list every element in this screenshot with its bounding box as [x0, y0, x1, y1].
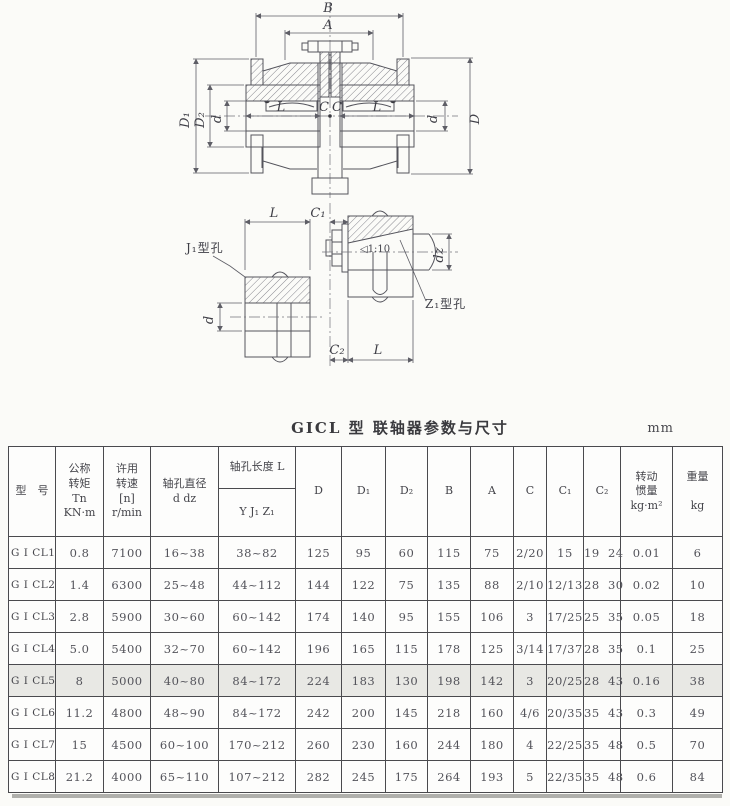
cell-B: 178 [428, 633, 471, 665]
cell-torque: 21.2 [56, 761, 104, 793]
dim-label-C1: C₁ [310, 206, 325, 221]
cell-A: 193 [471, 761, 514, 793]
parameters-table: 型 号 公称 转矩 Tn KN·m 许用 转速 [n] r/min 轴孔直径 d… [8, 446, 723, 793]
cell-A: 106 [471, 601, 514, 633]
cell-C1: 20/25 [547, 665, 584, 697]
dim-label-L-bottom: L [373, 343, 383, 358]
cell-speed: 5900 [104, 601, 151, 633]
cell-A: 142 [471, 665, 514, 697]
cell-model: G I CL2 [9, 569, 56, 601]
cell-weight: 49 [673, 697, 723, 729]
dim-label-C2: C₂ [329, 343, 344, 358]
table-header: 型 号 公称 转矩 Tn KN·m 许用 转速 [n] r/min 轴孔直径 d… [9, 447, 723, 537]
dim-label-L-right: L [372, 100, 382, 115]
cell-model: G I CL7 [9, 729, 56, 761]
table-row: G I CL715450060~100170~21226023016024418… [9, 729, 723, 761]
center-flange-left [320, 52, 329, 97]
cell-torque: 0.8 [56, 537, 104, 569]
cell-C2: 28 43 [584, 665, 621, 697]
cell-model: G I CL8 [9, 761, 56, 793]
cell-A: 160 [471, 697, 514, 729]
cell-D1: 165 [342, 633, 386, 665]
cell-D2: 160 [386, 729, 428, 761]
cell-C2: 35 43 [584, 697, 621, 729]
Z1-bore-label: Z₁型孔 [425, 297, 466, 311]
cell-speed: 6300 [104, 569, 151, 601]
cell-torque: 2.8 [56, 601, 104, 633]
cell-torque: 5.0 [56, 633, 104, 665]
cell-bore-range: 16~38 [151, 537, 219, 569]
cell-length-range: 44~112 [219, 569, 296, 601]
cell-bore-range: 32~70 [151, 633, 219, 665]
col-header-torque: 公称 转矩 Tn KN·m [56, 447, 104, 537]
col-header-weight: 重量 kg [673, 447, 723, 537]
cell-D1: 140 [342, 601, 386, 633]
col-header-inertia: 转动 惯量 kg·m² [621, 447, 673, 537]
table-row: G I CL21.4630025~4844~11214412275135882/… [9, 569, 723, 601]
label-J1-bore: J₁型孔 [184, 241, 245, 277]
dim-C2-L: C₂ L [329, 300, 413, 363]
cell-weight: 84 [673, 761, 723, 793]
col-header-length-sub: Y J₁ Z₁ [219, 489, 296, 537]
cell-C: 4/6 [514, 697, 547, 729]
cell-B: 115 [428, 537, 471, 569]
cell-inertia: 0.6 [621, 761, 673, 793]
dim-label-B: B [322, 1, 333, 16]
cell-length-range: 170~212 [219, 729, 296, 761]
dim-label-dz: dz [432, 247, 447, 262]
col-header-D2: D₂ [386, 447, 428, 537]
cell-weight: 18 [673, 601, 723, 633]
cell-C: 2/10 [514, 569, 547, 601]
dim-label-A: A [322, 18, 332, 33]
cell-A: 88 [471, 569, 514, 601]
cell-C: 3 [514, 601, 547, 633]
cell-C: 4 [514, 729, 547, 761]
cell-D2: 95 [386, 601, 428, 633]
cell-C: 3 [514, 665, 547, 697]
dim-label-detail-L-top: L [269, 206, 279, 221]
catalog-page: B A D₁ D₂ [0, 0, 730, 806]
hub-detail-drawing: d L C₁ J₁型孔 [184, 203, 466, 368]
unit-label: mm [647, 421, 674, 436]
cell-inertia: 0.1 [621, 633, 673, 665]
cell-weight: 25 [673, 633, 723, 665]
col-header-length-group: 轴孔长度 L [219, 447, 296, 489]
center-flange-right [331, 52, 340, 97]
cell-inertia: 0.05 [621, 601, 673, 633]
cell-model: G I CL1 [9, 537, 56, 569]
col-header-model: 型 号 [9, 447, 56, 537]
cell-weight: 6 [673, 537, 723, 569]
cell-torque: 15 [56, 729, 104, 761]
col-header-A: A [471, 447, 514, 537]
cell-D2: 175 [386, 761, 428, 793]
table-row: G I CL45.0540032~7060~142196165115178125… [9, 633, 723, 665]
dim-label-C-left: C [319, 100, 329, 115]
cell-speed: 7100 [104, 537, 151, 569]
cell-D2: 60 [386, 537, 428, 569]
cell-C: 3/14 [514, 633, 547, 665]
cell-inertia: 0.02 [621, 569, 673, 601]
dim-label-D1: D₁ [178, 112, 193, 129]
cell-D: 260 [296, 729, 342, 761]
cell-weight: 70 [673, 729, 723, 761]
cell-D1: 245 [342, 761, 386, 793]
dim-label-D: D [468, 113, 483, 125]
cell-B: 155 [428, 601, 471, 633]
cell-D1: 122 [342, 569, 386, 601]
cell-weight: 10 [673, 569, 723, 601]
cell-B: 198 [428, 665, 471, 697]
cell-D2: 115 [386, 633, 428, 665]
cell-model: G I CL3 [9, 601, 56, 633]
cell-D: 282 [296, 761, 342, 793]
cell-speed: 4000 [104, 761, 151, 793]
cell-speed: 5000 [104, 665, 151, 697]
dim-label-D2: D₂ [193, 112, 208, 129]
J1-bore-label: J₁型孔 [184, 241, 224, 255]
dim-C1: C₁ [310, 206, 348, 222]
cell-C2: 28 35 [584, 633, 621, 665]
cell-D1: 95 [342, 537, 386, 569]
col-header-C: C [514, 447, 547, 537]
cell-inertia: 0.16 [621, 665, 673, 697]
cell-torque: 11.2 [56, 697, 104, 729]
table-row: G I CL32.8590030~6060~142174140951551063… [9, 601, 723, 633]
cell-torque: 8 [56, 665, 104, 697]
cell-A: 75 [471, 537, 514, 569]
cell-bore-range: 25~48 [151, 569, 219, 601]
cell-C: 2/20 [514, 537, 547, 569]
col-header-C2: C₂ [584, 447, 621, 537]
cell-speed: 4500 [104, 729, 151, 761]
cell-D1: 183 [342, 665, 386, 697]
cell-C2: 25 35 [584, 601, 621, 633]
main-assembly-drawing: B A D₁ D₂ [178, 1, 483, 198]
cell-D2: 145 [386, 697, 428, 729]
cell-length-range: 107~212 [219, 761, 296, 793]
cell-length-range: 60~142 [219, 633, 296, 665]
dim-label-detail-d: d [202, 316, 217, 324]
cell-bore-range: 30~60 [151, 601, 219, 633]
cell-A: 180 [471, 729, 514, 761]
taper-label: ◁1:10 [360, 244, 390, 255]
dim-label-C-right: C [332, 100, 342, 115]
cell-model: G I CL4 [9, 633, 56, 665]
cell-C1: 22/35 [547, 761, 584, 793]
cell-C: 5 [514, 761, 547, 793]
col-header-D1: D₁ [342, 447, 386, 537]
cell-C2: 35 48 [584, 761, 621, 793]
table-row: G I CL821.2400065~110107~212282245175264… [9, 761, 723, 793]
cell-B: 264 [428, 761, 471, 793]
cell-D1: 200 [342, 697, 386, 729]
cell-D: 144 [296, 569, 342, 601]
cell-length-range: 84~172 [219, 697, 296, 729]
table-body: G I CL10.8710016~3838~821259560115752/20… [9, 537, 723, 793]
cell-C1: 17/37 [547, 633, 584, 665]
cell-bore-range: 48~90 [151, 697, 219, 729]
cell-B: 244 [428, 729, 471, 761]
cell-inertia: 0.3 [621, 697, 673, 729]
col-header-speed: 许用 转速 [n] r/min [104, 447, 151, 537]
cell-B: 218 [428, 697, 471, 729]
table-row: G I CL10.8710016~3838~821259560115752/20… [9, 537, 723, 569]
cell-D2: 75 [386, 569, 428, 601]
cell-bore-range: 40~80 [151, 665, 219, 697]
cell-D: 125 [296, 537, 342, 569]
cell-length-range: 60~142 [219, 601, 296, 633]
cell-C1: 22/25 [547, 729, 584, 761]
detail-hub-J1 [230, 272, 322, 362]
cell-length-range: 38~82 [219, 537, 296, 569]
cell-D: 196 [296, 633, 342, 665]
cell-D2: 130 [386, 665, 428, 697]
cell-C2: 19 24 [584, 537, 621, 569]
cell-D: 242 [296, 697, 342, 729]
cell-B: 135 [428, 569, 471, 601]
dim-label-d-right: d [426, 115, 441, 123]
page-title: GICL 型 联轴器参数与尺寸 [0, 417, 730, 438]
cell-model: G I CL6 [9, 697, 56, 729]
cell-D: 224 [296, 665, 342, 697]
dim-dz: dz [432, 234, 452, 270]
cell-length-range: 84~172 [219, 665, 296, 697]
cell-C1: 15 [547, 537, 584, 569]
cell-model: G I CL5 [9, 665, 56, 697]
col-header-bore: 轴孔直径 d dz [151, 447, 219, 537]
cell-inertia: 0.5 [621, 729, 673, 761]
cell-D1: 230 [342, 729, 386, 761]
table-row: G I CL611.2480048~9084~17224220014521816… [9, 697, 723, 729]
cell-C2: 35 48 [584, 729, 621, 761]
cell-speed: 4800 [104, 697, 151, 729]
dim-label-L-left: L [276, 100, 286, 115]
table-shadow [12, 794, 722, 798]
cell-weight: 38 [673, 665, 723, 697]
cell-D: 174 [296, 601, 342, 633]
cell-C1: 12/13 [547, 569, 584, 601]
cell-bore-range: 65~110 [151, 761, 219, 793]
cell-speed: 5400 [104, 633, 151, 665]
cell-inertia: 0.01 [621, 537, 673, 569]
col-header-C1: C₁ [547, 447, 584, 537]
cell-A: 125 [471, 633, 514, 665]
cell-C1: 17/25 [547, 601, 584, 633]
cell-torque: 1.4 [56, 569, 104, 601]
col-header-D: D [296, 447, 342, 537]
col-header-B: B [428, 447, 471, 537]
cell-C2: 28 30 [584, 569, 621, 601]
dim-label-d-left: d [210, 115, 225, 123]
cell-bore-range: 60~100 [151, 729, 219, 761]
table-row: G I CL58500040~8084~17222418313019814232… [9, 665, 723, 697]
technical-drawing: B A D₁ D₂ [0, 0, 730, 412]
dim-detail-L-top: L [245, 206, 310, 270]
cell-C1: 20/35 [547, 697, 584, 729]
